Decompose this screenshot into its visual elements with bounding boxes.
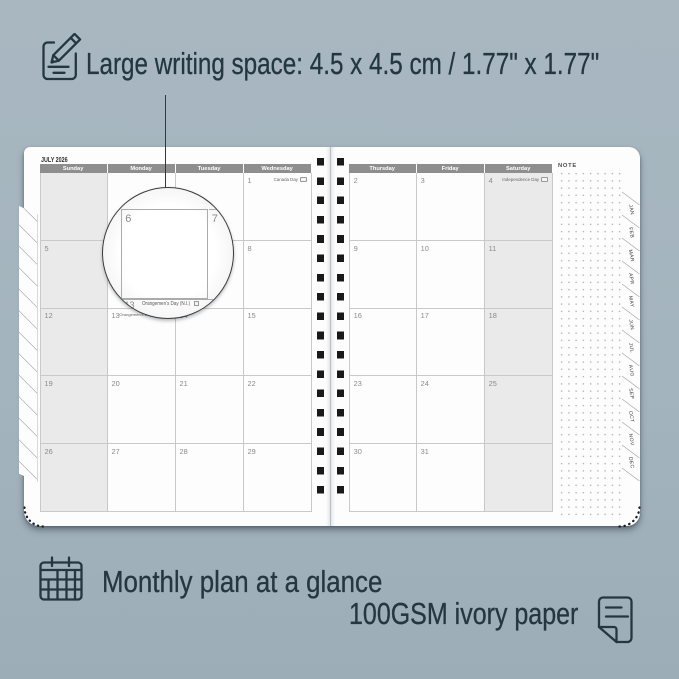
svg-text:APR: APR [627,273,635,285]
svg-text:SEP: SEP [627,388,635,400]
svg-text:FEB: FEB [627,227,635,239]
svg-text:DEC: DEC [627,457,635,470]
svg-text:JAN: JAN [627,204,635,216]
svg-text:AUG: AUG [627,364,635,377]
svg-text:NOV: NOV [627,433,635,446]
svg-text:MAR: MAR [627,249,635,262]
svg-text:JUL: JUL [627,342,635,353]
svg-text:MAY: MAY [627,296,635,309]
svg-text:OCT: OCT [627,411,635,424]
svg-text:JUN: JUN [627,319,635,331]
